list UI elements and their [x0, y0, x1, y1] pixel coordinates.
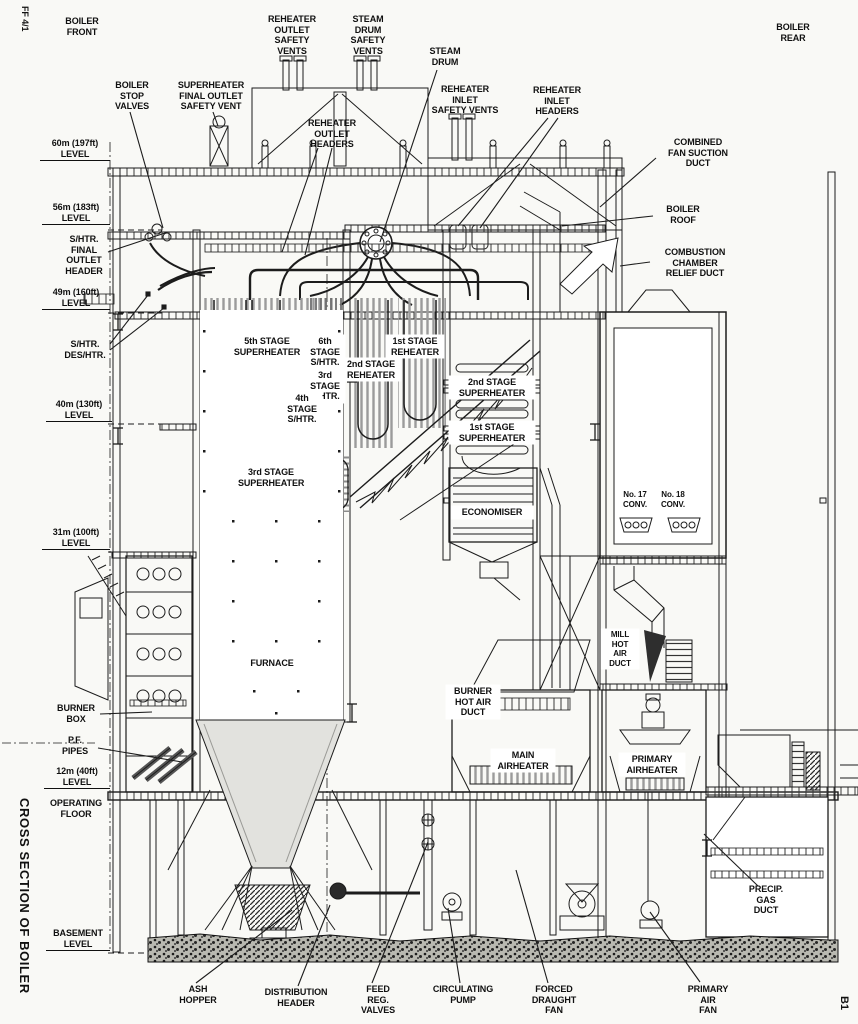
label-burner-box: BURNER BOX: [50, 703, 102, 724]
label-primary-air-fan: PRIMARY AIR FAN: [682, 984, 734, 1016]
label-stage-5-superheater: 5th STAGE SUPERHEATER: [231, 336, 303, 357]
label-reheater-outlet-headers: REHEATER OUTLET HEADERS: [300, 118, 364, 150]
furnace-glyph: [168, 310, 372, 930]
label-economiser: ECONOMISER: [452, 507, 532, 518]
label-reheater-inlet-safety-vents: REHEATER INLET SAFETY VENTS: [420, 84, 510, 116]
label-stage-2-reheater: 2nd STAGE REHEATER: [342, 359, 400, 380]
primary-airheater-glyph: [602, 690, 706, 792]
boiler-cross-section-sheet: FF 4/1 CROSS SECTION OF BOILER B1 BOILER…: [0, 0, 858, 1024]
label-shtr-final-outlet-header: S/HTR. FINAL OUTLET HEADER: [58, 234, 110, 276]
label-boiler-stop-valves: BOILER STOP VALVES: [103, 80, 161, 112]
label-level-56m: 56m (183ft) LEVEL: [42, 202, 110, 225]
label-level-31m: 31m (100ft) LEVEL: [42, 527, 110, 550]
label-distribution-header: DISTRIBUTION HEADER: [256, 987, 336, 1008]
backpass: [444, 364, 560, 688]
label-stage-4-shtr: 4th STAGE S/HTR.: [283, 393, 321, 425]
label-superheater-final-outlet-safety-vent: SUPERHEATER FINAL OUTLET SAFETY VENT: [168, 80, 254, 112]
label-stage-6-shtr: 6th STAGE S/HTR.: [306, 336, 344, 368]
mill-hot-air-duct-glyph: [540, 556, 692, 690]
label-stage-2-superheater: 2nd STAGE SUPERHEATER: [450, 377, 534, 398]
basement-machines: [422, 792, 662, 930]
label-boiler-front: BOILER FRONT: [52, 16, 112, 37]
label-burner-hot-air-duct: BURNER HOT AIR DUCT: [447, 686, 499, 718]
label-basement-level: BASEMENT LEVEL: [46, 928, 110, 951]
label-combined-fan-suction-duct: COMBINED FAN SUCTION DUCT: [658, 137, 738, 169]
drum-house: [210, 56, 622, 230]
label-precip-gas-duct: PRECIP. GAS DUCT: [742, 884, 790, 916]
upper-convection-pipes: [205, 244, 595, 300]
label-level-40m: 40m (130ft) LEVEL: [46, 399, 112, 422]
label-steam-drum: STEAM DRUM: [415, 46, 475, 67]
label-shtr-deshtr: S/HTR. DES/HTR.: [58, 339, 112, 360]
label-reheater-inlet-headers: REHEATER INLET HEADERS: [528, 85, 586, 117]
label-operating-floor: OPERATING FLOOR: [42, 798, 110, 819]
label-conv-17: No. 17 CONV.: [617, 490, 653, 509]
drawing-title: CROSS SECTION OF BOILER: [17, 798, 32, 994]
label-pf-pipes: P.F. PIPES: [53, 735, 97, 756]
sheet-ref-top-left: FF 4/1: [19, 6, 30, 31]
label-level-49m: 49m (160ft) LEVEL: [42, 287, 110, 310]
label-forced-draught-fan: FORCED DRAUGHT FAN: [526, 984, 582, 1016]
label-furnace: FURNACE: [238, 658, 306, 669]
conveyor-house: [600, 290, 726, 558]
label-circulating-pump: CIRCULATING PUMP: [426, 984, 500, 1005]
label-level-60m: 60m (197ft) LEVEL: [40, 138, 110, 161]
label-main-airheater: MAIN AIRHEATER: [492, 750, 554, 771]
label-feed-reg-valves: FEED REG. VALVES: [356, 984, 400, 1016]
label-ash-hopper: ASH HOPPER: [170, 984, 226, 1005]
label-primary-airheater: PRIMARY AIRHEATER: [620, 754, 684, 775]
label-level-12m: 12m (40ft) LEVEL: [44, 766, 110, 789]
label-stage-3-superheater: 3rd STAGE SUPERHEATER: [238, 467, 304, 488]
label-mill-hot-air-duct: MILL HOT AIR DUCT: [602, 630, 638, 668]
sheet-ref-bottom-right: B1: [837, 996, 850, 1010]
label-boiler-rear: BOILER REAR: [763, 22, 823, 43]
label-conv-18: No. 18 CONV.: [655, 490, 691, 509]
label-steam-drum-safety-vents: STEAM DRUM SAFETY VENTS: [338, 14, 398, 56]
label-boiler-roof: BOILER ROOF: [655, 204, 711, 225]
label-reheater-outlet-safety-vents: REHEATER OUTLET SAFETY VENTS: [258, 14, 326, 56]
label-combustion-chamber-relief-duct: COMBUSTION CHAMBER RELIEF DUCT: [652, 247, 738, 279]
label-stage-1-superheater: 1st STAGE SUPERHEATER: [450, 422, 534, 443]
label-stage-1-reheater: 1st STAGE REHEATER: [387, 336, 443, 357]
